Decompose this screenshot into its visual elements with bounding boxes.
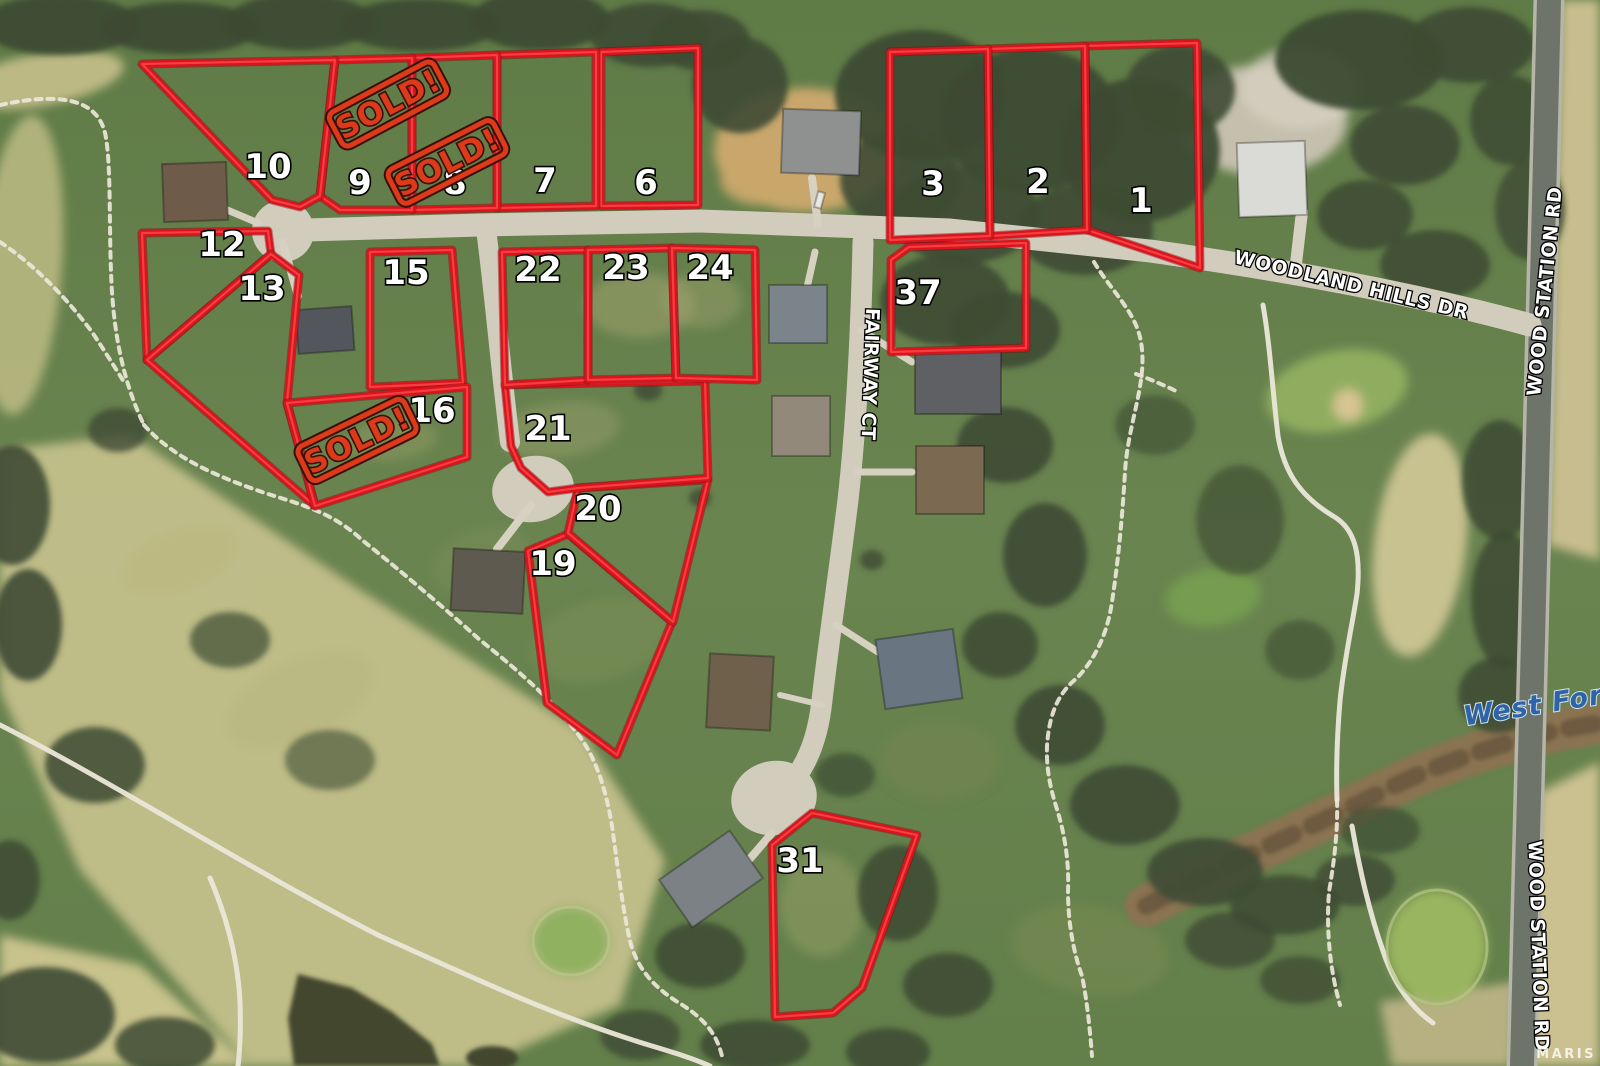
lot-number-9: 9 — [348, 163, 372, 203]
maris-watermark: MARIS — [1536, 1047, 1596, 1062]
terrain-blob — [860, 550, 884, 570]
terrain-blob — [1333, 389, 1363, 421]
terrain-blob — [190, 612, 270, 668]
terrain-blob — [1265, 620, 1335, 680]
house-roof — [876, 629, 963, 709]
terrain-blob — [1070, 765, 1180, 845]
aerial-plat-map: 123678910121315161920212223243137 SOLD!S… — [0, 0, 1600, 1066]
terrain-blob — [1405, 7, 1535, 83]
terrain-blob — [962, 612, 1038, 678]
lot-number-15: 15 — [382, 253, 429, 293]
lot-number-23: 23 — [602, 248, 649, 288]
terrain-blob — [1196, 465, 1284, 575]
terrain-blob — [1125, 45, 1235, 135]
lot-number-20: 20 — [574, 489, 621, 529]
house-roof — [706, 653, 774, 730]
lot-number-2: 2 — [1026, 162, 1050, 202]
terrain-blob — [1260, 956, 1340, 1004]
house-roof — [162, 162, 228, 222]
house-roof — [450, 548, 525, 614]
lot-number-6: 6 — [634, 163, 658, 203]
lot-number-12: 12 — [198, 225, 245, 265]
terrain-blob — [655, 922, 745, 988]
terrain-blob — [1350, 105, 1460, 185]
house-roof — [772, 396, 830, 456]
lot-number-10: 10 — [244, 147, 291, 187]
lot-number-37: 37 — [894, 273, 941, 313]
terrain-blob — [880, 720, 1000, 800]
lot-number-3: 3 — [921, 164, 945, 204]
plat-map-screenshot: 123678910121315161920212223243137 SOLD!S… — [0, 0, 1600, 1066]
lot-number-22: 22 — [514, 250, 561, 290]
lot-number-19: 19 — [529, 544, 576, 584]
lot-number-13: 13 — [238, 269, 285, 309]
lot-number-7: 7 — [533, 161, 557, 201]
terrain-blob — [45, 727, 145, 803]
lot-number-21: 21 — [524, 409, 571, 449]
house-roof — [781, 109, 861, 176]
house-roof — [916, 446, 984, 514]
lot-number-1: 1 — [1129, 181, 1153, 221]
terrain-blob — [815, 753, 875, 797]
terrain-blob — [285, 730, 375, 790]
terrain-blob — [1185, 912, 1275, 968]
terrain-blob — [903, 953, 993, 1017]
house-roof — [1237, 141, 1308, 217]
terrain-blob — [692, 37, 788, 133]
street-label-fairway-ct: FAIRWAY CT — [857, 308, 884, 441]
lot-number-31: 31 — [776, 841, 823, 881]
house-roof — [915, 350, 1001, 414]
lot-number-24: 24 — [686, 248, 733, 288]
terrain-blob — [1003, 503, 1087, 607]
house-roof — [296, 306, 355, 354]
house-roof — [769, 285, 827, 343]
